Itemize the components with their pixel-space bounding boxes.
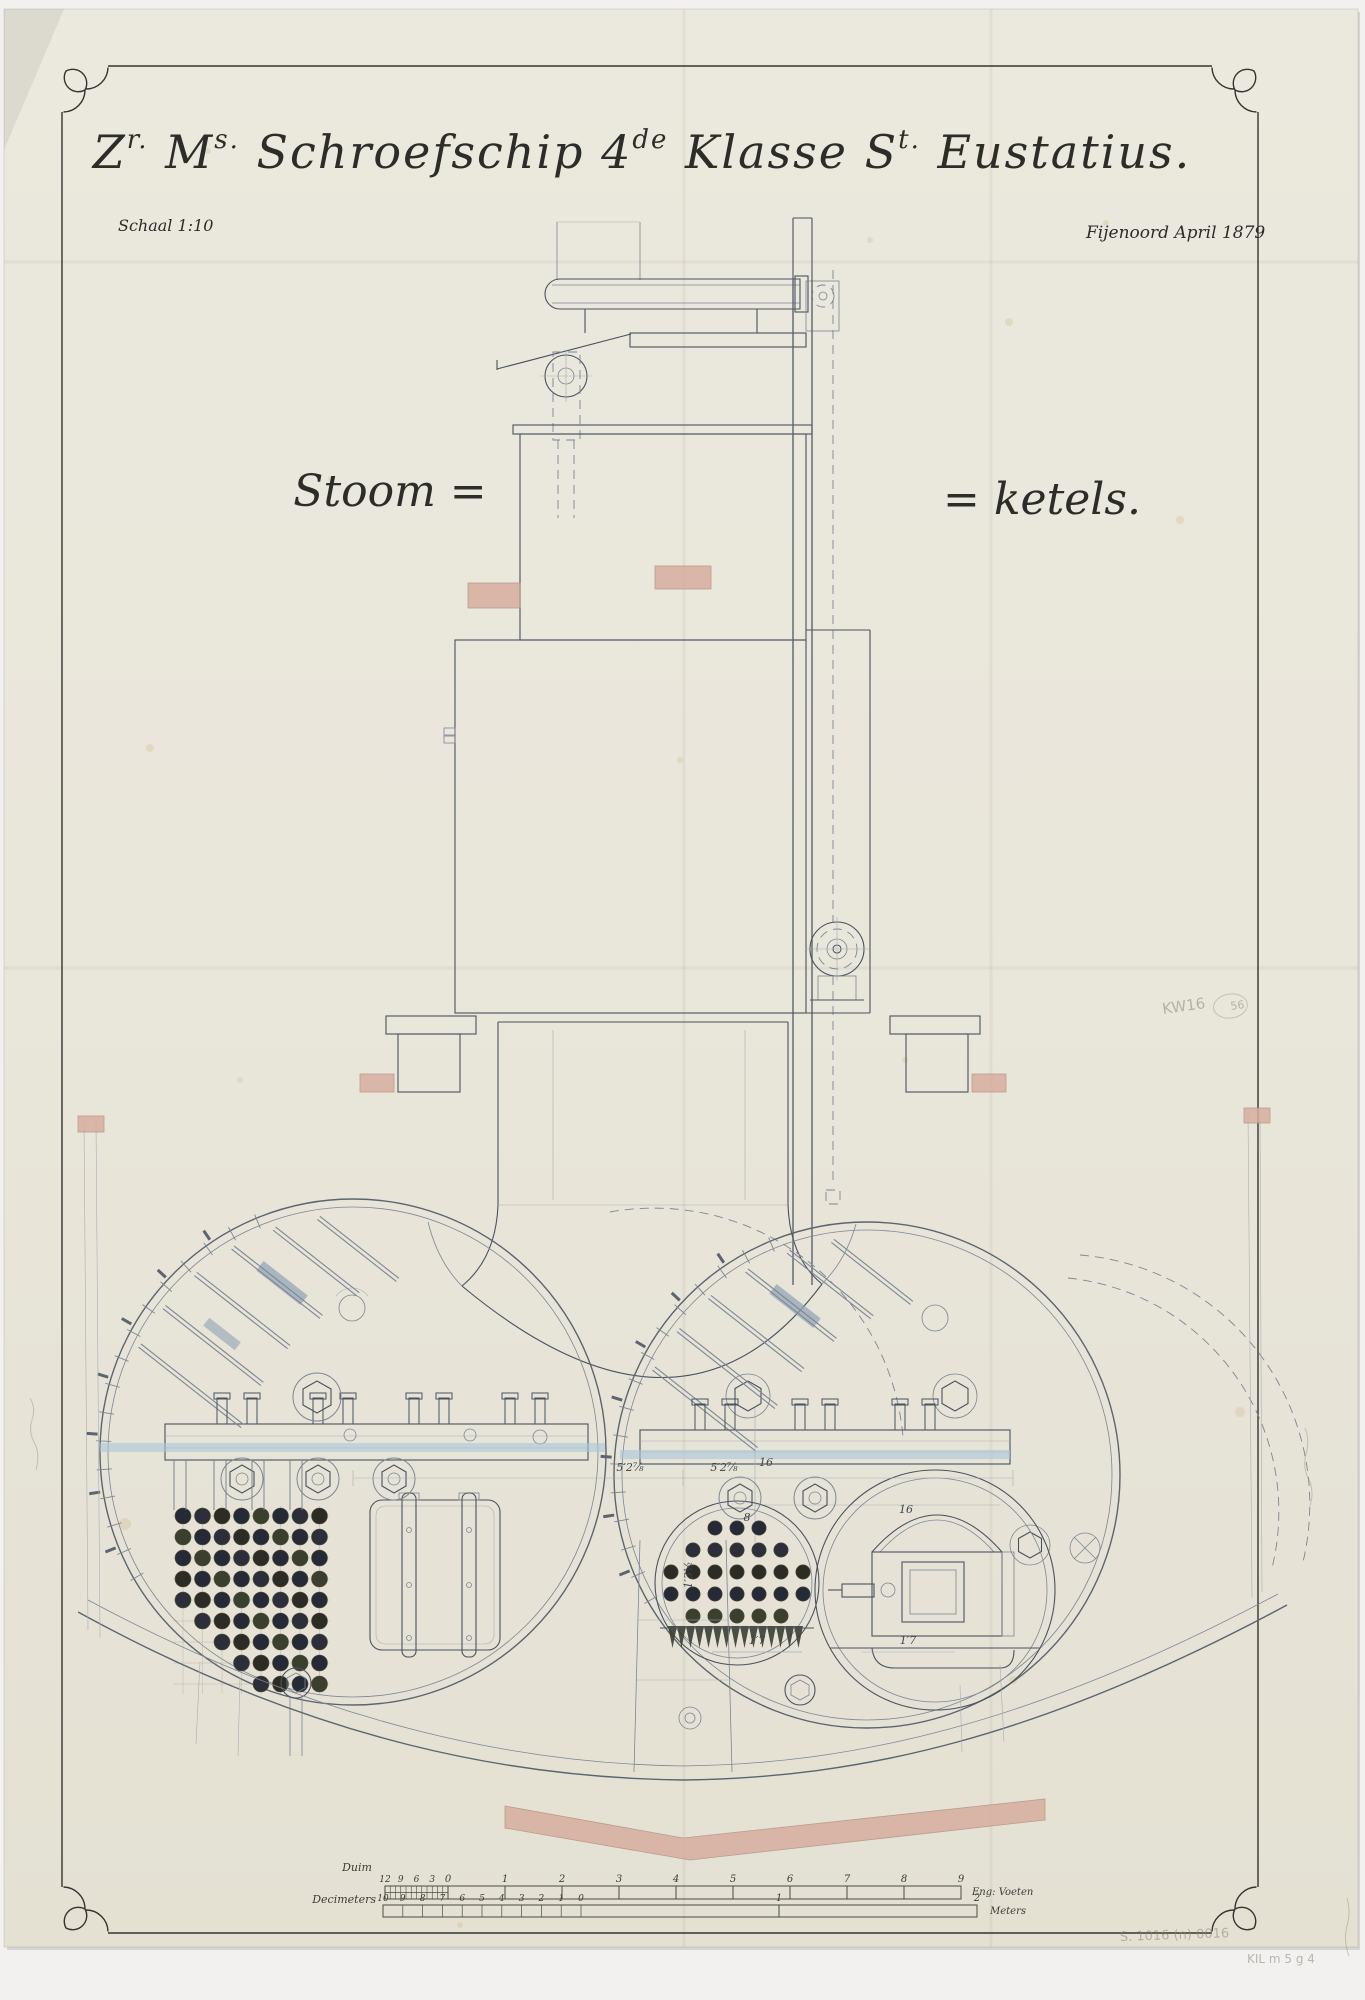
ruler-number: 0 — [578, 1894, 584, 1904]
ruler-number: 3 — [519, 1894, 525, 1904]
ruler-number: 1 — [502, 1874, 508, 1885]
ruler-number: 1 — [776, 1893, 782, 1904]
ruler-number: 5 — [479, 1894, 485, 1904]
ruler-number: 4 — [672, 1874, 679, 1885]
drawing-sheet: Zr. Ms. Schroefschip 4de Klasse St. Eust… — [0, 0, 1365, 2000]
side-beam-left — [78, 1116, 104, 1132]
dimension-label: 16 — [899, 1503, 913, 1516]
ruler-number: 3 — [616, 1874, 622, 1885]
deck-beam-left — [468, 583, 520, 608]
dimension-label: 1′7 — [749, 1634, 766, 1647]
pencil-note: 56 — [1230, 998, 1246, 1013]
ruler-number: 9 — [398, 1875, 404, 1885]
ruler-number: 7 — [440, 1894, 446, 1904]
place-date: Fijenoord April 1879 — [1085, 223, 1265, 243]
subject-label-right: = ketels. — [943, 474, 1141, 525]
ruler-unit-label: Eng: Voeten — [971, 1887, 1033, 1898]
ruler-number: 7 — [844, 1874, 851, 1885]
ruler-number: 2 — [973, 1893, 980, 1904]
ruler-number: Duim — [341, 1861, 372, 1874]
ruler-number: 6 — [787, 1874, 794, 1885]
boiler-drawing-svg: Zr. Ms. Schroefschip 4de Klasse St. Eust… — [0, 0, 1365, 2000]
ruler-number: 10 — [377, 1894, 389, 1904]
water-level-line — [100, 1443, 605, 1452]
ruler-number: 0 — [445, 1874, 452, 1885]
ruler-number: 8 — [901, 1874, 907, 1885]
dimension-label: 5′2⅞ — [710, 1461, 737, 1474]
ruler-number: 2 — [538, 1894, 545, 1904]
pencil-note: KIL m 5 g 4 — [1247, 1952, 1315, 1966]
paper-sheet — [4, 9, 1358, 1947]
dimension-label: 16 — [759, 1456, 773, 1469]
ruler-number: 8 — [420, 1894, 426, 1904]
ruler-number: 4 — [498, 1894, 505, 1904]
dimension-label: 5′2⅞ — [616, 1461, 643, 1474]
scale-note: Schaal 1:10 — [118, 216, 213, 235]
dimension-label: 8 — [744, 1511, 751, 1524]
ruler-number: Decimeters — [311, 1893, 376, 1906]
ruler-number: 3 — [429, 1875, 435, 1885]
ruler-number: 1 — [558, 1894, 564, 1904]
dimension-label: 1′7 — [900, 1634, 917, 1647]
ruler-number: 9 — [958, 1874, 965, 1885]
deck-beam-right — [655, 566, 711, 589]
ruler-number: 5 — [730, 1874, 736, 1885]
ruler-number: 6 — [414, 1875, 420, 1885]
subject-label-left: Stoom = — [293, 466, 486, 517]
ruler-number: 6 — [459, 1894, 465, 1904]
dimension-label: 1′3½ — [682, 1561, 695, 1588]
ruler-number: 12 — [379, 1875, 391, 1885]
ruler-unit-label: Meters — [989, 1906, 1026, 1917]
side-beam-right — [1244, 1108, 1270, 1123]
ruler-number: 9 — [400, 1894, 406, 1904]
ruler-number: 2 — [558, 1874, 565, 1885]
